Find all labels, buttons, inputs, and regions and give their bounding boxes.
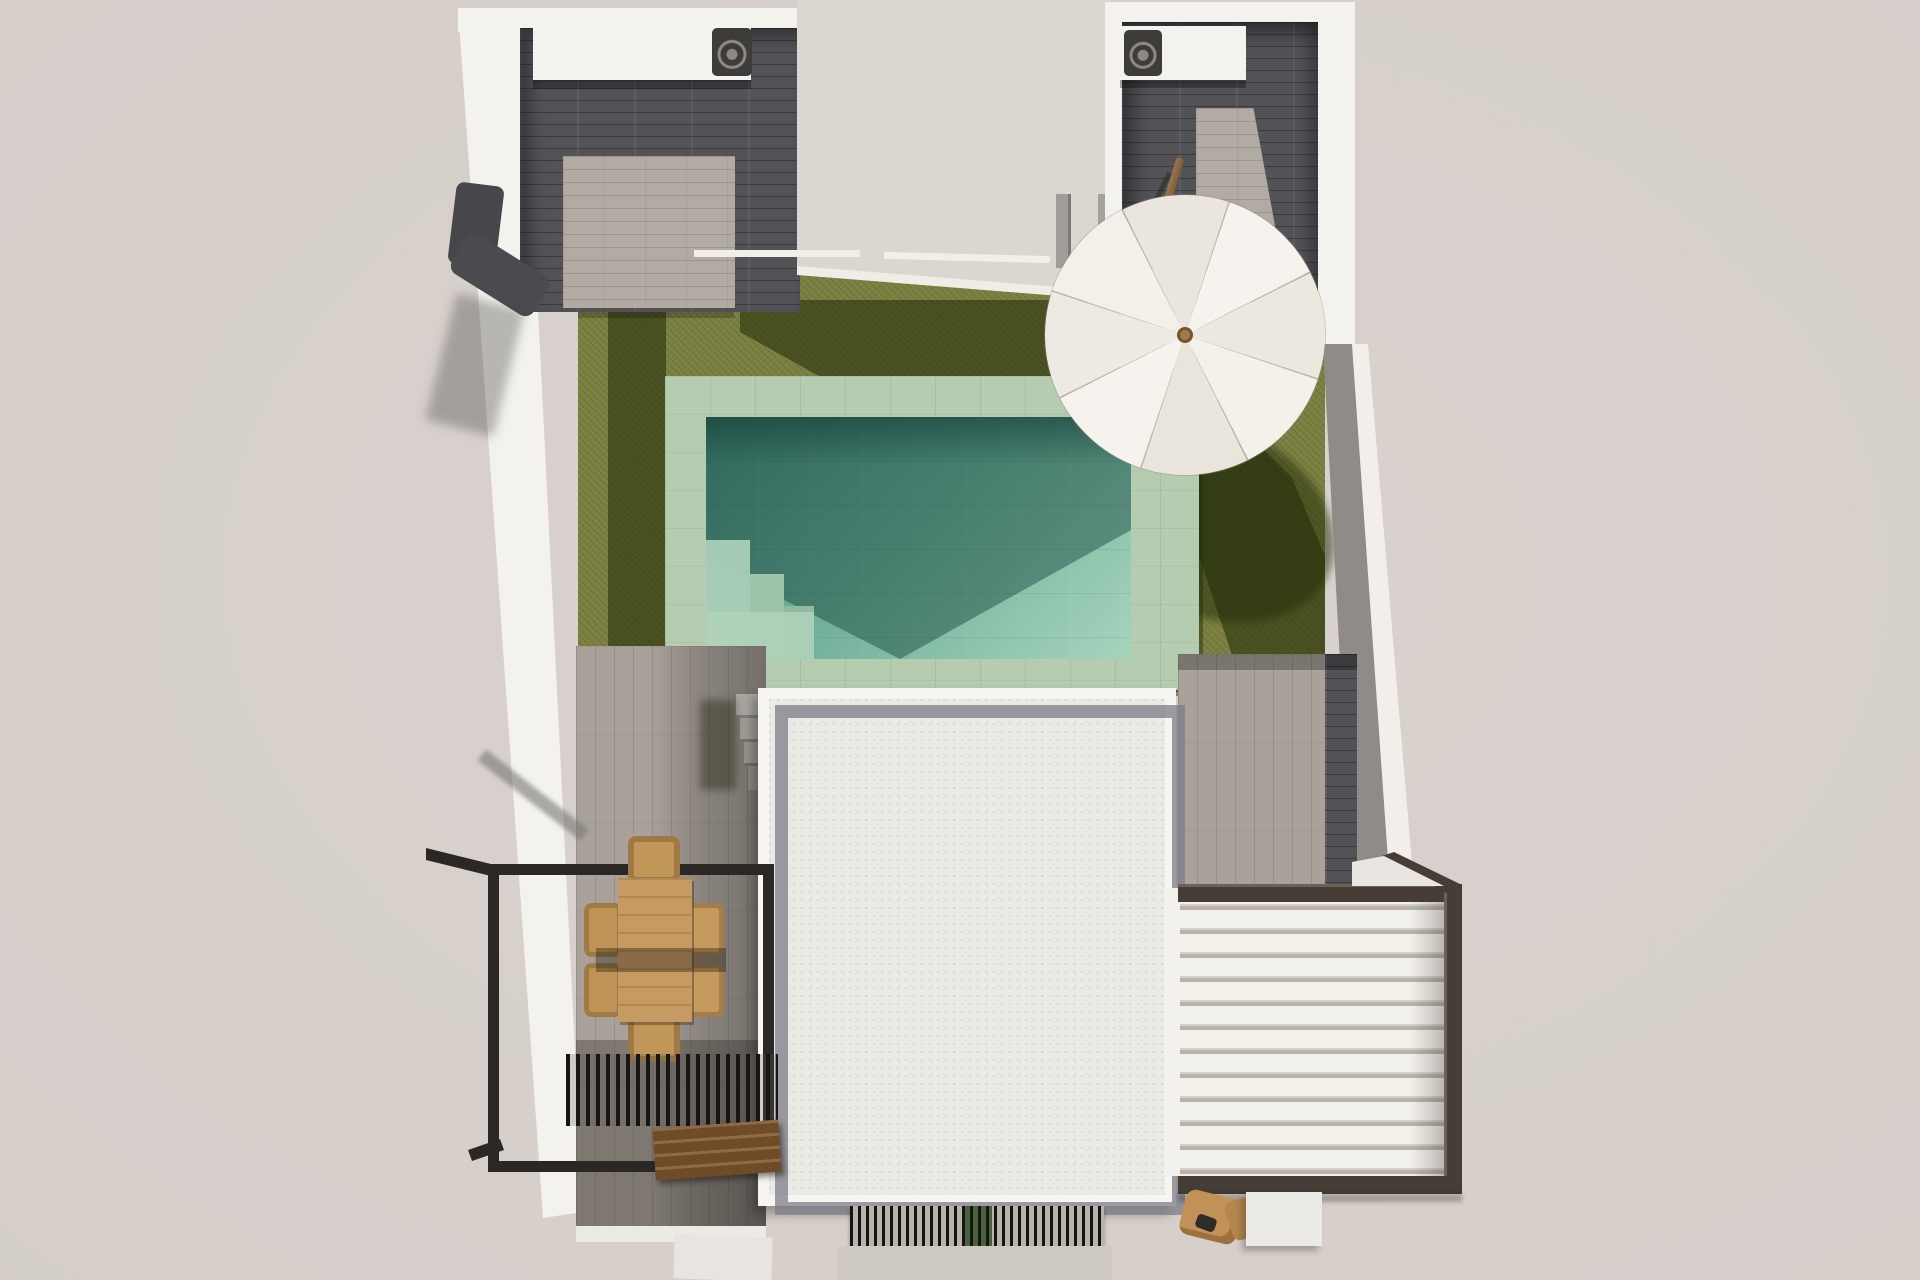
bottom-apron	[838, 1246, 1112, 1280]
main-roof	[758, 688, 1176, 1206]
drain-grate-slats	[850, 1206, 1104, 1246]
beam-shadow-over-table	[596, 948, 726, 972]
left-courtyard-light-tile	[563, 156, 735, 308]
wood-bench	[652, 1120, 781, 1181]
pergola-frame-right	[1444, 884, 1462, 1194]
grill-slat-canopy	[566, 1054, 778, 1126]
pergola-frame-top	[1178, 884, 1462, 902]
bottom-left-step	[673, 1234, 772, 1280]
pergola-white-step	[1246, 1192, 1322, 1246]
steps-shadow	[700, 700, 736, 790]
ac-fan-unit-left	[712, 28, 752, 76]
right-terrace-top-shadow	[1178, 654, 1357, 670]
ac-fan-unit-right	[1124, 30, 1162, 76]
dining-chair-top	[628, 836, 680, 883]
wall-shadow-strip	[608, 312, 666, 690]
roof-parapet-band	[775, 705, 1185, 1215]
right-terrace-deck	[1178, 654, 1325, 890]
pergola-wall-sliver	[1164, 888, 1180, 1176]
pergola-louvre-end-shade	[1180, 886, 1448, 1176]
middle-roof-ledge-1	[694, 250, 860, 257]
right-terrace-dark-band	[1325, 654, 1357, 890]
pool-wall-shadow-band	[706, 417, 1131, 465]
aerial-villa-render	[0, 0, 1920, 1280]
